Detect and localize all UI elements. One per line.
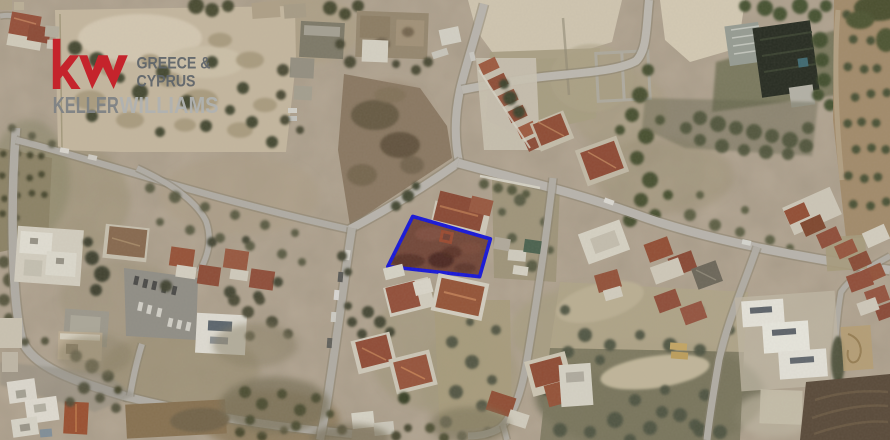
svg-text:KELLER: KELLER xyxy=(53,92,119,118)
svg-text:WILLIAMS: WILLIAMS xyxy=(120,92,219,118)
svg-text:GREECE &: GREECE & xyxy=(137,53,211,72)
svg-text:CYPRUS: CYPRUS xyxy=(137,71,196,90)
